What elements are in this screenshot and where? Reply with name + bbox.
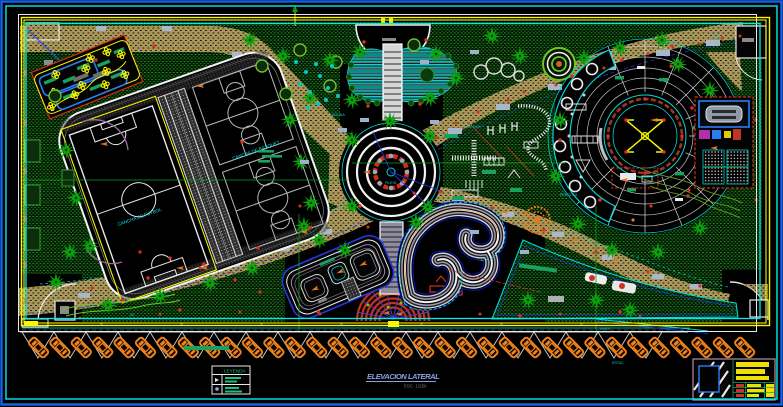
svg-text:ESC. 1/250: ESC. 1/250	[404, 384, 427, 389]
svg-text:JUEGOS: JUEGOS	[466, 125, 481, 129]
svg-text:ELEVACION LATERAL: ELEVACION LATERAL	[367, 372, 440, 381]
svg-text:PILETA: PILETA	[385, 181, 397, 185]
svg-text:AV: AV	[130, 313, 135, 317]
svg-text:LAGUNA: LAGUNA	[330, 113, 345, 117]
svg-text:LEYENDA: LEYENDA	[224, 369, 246, 374]
svg-text:PERGOLA: PERGOLA	[560, 193, 578, 197]
svg-text:SECC: SECC	[712, 35, 722, 39]
svg-text:ESTAC: ESTAC	[612, 361, 624, 365]
